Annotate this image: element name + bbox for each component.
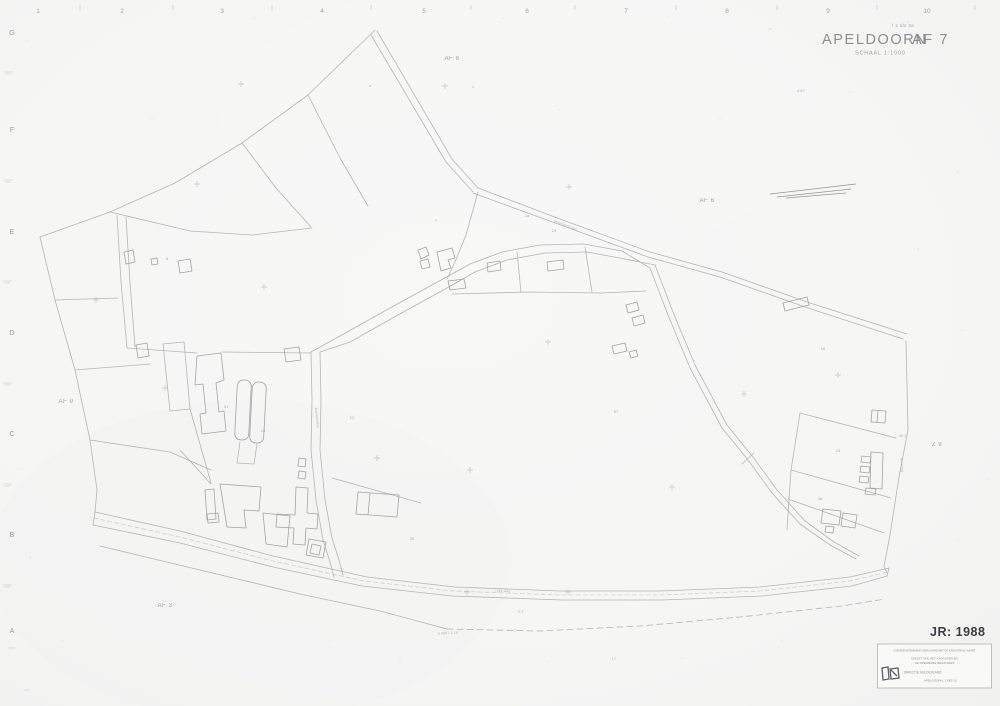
adjacent-sheet-label: AF 8 <box>444 56 459 62</box>
sheet-code: AF 7 <box>912 32 949 48</box>
grid-number-label: 9 <box>826 8 830 15</box>
micro-text-label: a 2607 1 10 <box>438 631 458 636</box>
parcel-number-label: 12 <box>350 415 355 420</box>
year-label: JR: 1988 <box>930 625 985 639</box>
stamp-date: APELDOORN, 1 MEI 19 <box>924 679 957 683</box>
grid-number-label: 4 <box>320 8 324 15</box>
parcel-number-label: 57 <box>614 409 619 414</box>
sheet-scale: SCHAAL 1:1000 <box>855 51 906 57</box>
parcel-number-label: 29 <box>552 228 557 233</box>
grid-number-label: 10 <box>923 8 931 15</box>
stamp-header: OVEREENSTEMMEND VERKLAARD MET DE KADASTR… <box>894 649 976 653</box>
parcel-number-label: 23 <box>836 448 841 453</box>
cadastral-map-sheet: 12345678910GFEDCBAAF 8AF 6AF 9AF 3Z 9417… <box>0 0 1000 706</box>
parcel-number-label: 18 <box>821 346 826 351</box>
grid-letter-label: E <box>10 229 15 236</box>
grid-letter-label: G <box>9 30 14 37</box>
micro-text-label: 2.2 <box>518 610 523 614</box>
grid-letter-label: A <box>10 628 15 635</box>
grid-letter-label: F <box>10 127 14 134</box>
grid-number-label: 6 <box>525 8 529 15</box>
kadaster-stamp: OVEREENSTEMMEND VERKLAARD MET DE KADASTR… <box>878 644 992 688</box>
parcel-number-label: 4a <box>818 496 823 501</box>
grid-number-label: 2 <box>120 8 124 15</box>
micro-text-label: 17 <box>612 657 616 661</box>
parcel-number-label: 31 <box>224 404 229 409</box>
adjacent-sheet-label: AF 6 <box>699 198 714 204</box>
grid-number-label: 3 <box>220 8 224 15</box>
micro-text-label: 40.1 <box>899 434 906 438</box>
grid-letter-label: C <box>9 431 14 438</box>
sheet-annotation: f 1 als 3a <box>892 23 914 28</box>
stamp-line2: DE OPENBARE REGISTERS <box>915 661 955 665</box>
adjacent-sheet-label: Z 9 <box>932 442 943 448</box>
micro-text-label: 4.80 <box>797 89 804 93</box>
adjacent-sheet-label: AF 3 <box>157 603 172 609</box>
grid-letter-label: D <box>9 330 14 337</box>
grid-number-label: 1 <box>36 8 40 15</box>
parcel-number-label: 26 <box>410 536 415 541</box>
parcel-number-label: 1a <box>525 213 530 218</box>
grid-number-label: 8 <box>725 8 729 15</box>
stamp-line1: DIENST VAN HET KADASTER EN <box>911 657 958 661</box>
parcel-number-label: 19 <box>261 428 266 433</box>
grid-number-label: 5 <box>422 8 426 15</box>
micro-text-label: rijks weg <box>495 589 510 593</box>
grid-letter-label: B <box>10 532 15 539</box>
adjacent-sheet-label: AF 9 <box>58 399 73 405</box>
map-canvas: 12345678910GFEDCBAAF 8AF 6AF 9AF 3Z 9417… <box>0 0 1000 706</box>
grid-number-label: 7 <box>624 8 628 15</box>
stamp-org: DIRECTIE GELDERLAND <box>904 671 942 675</box>
